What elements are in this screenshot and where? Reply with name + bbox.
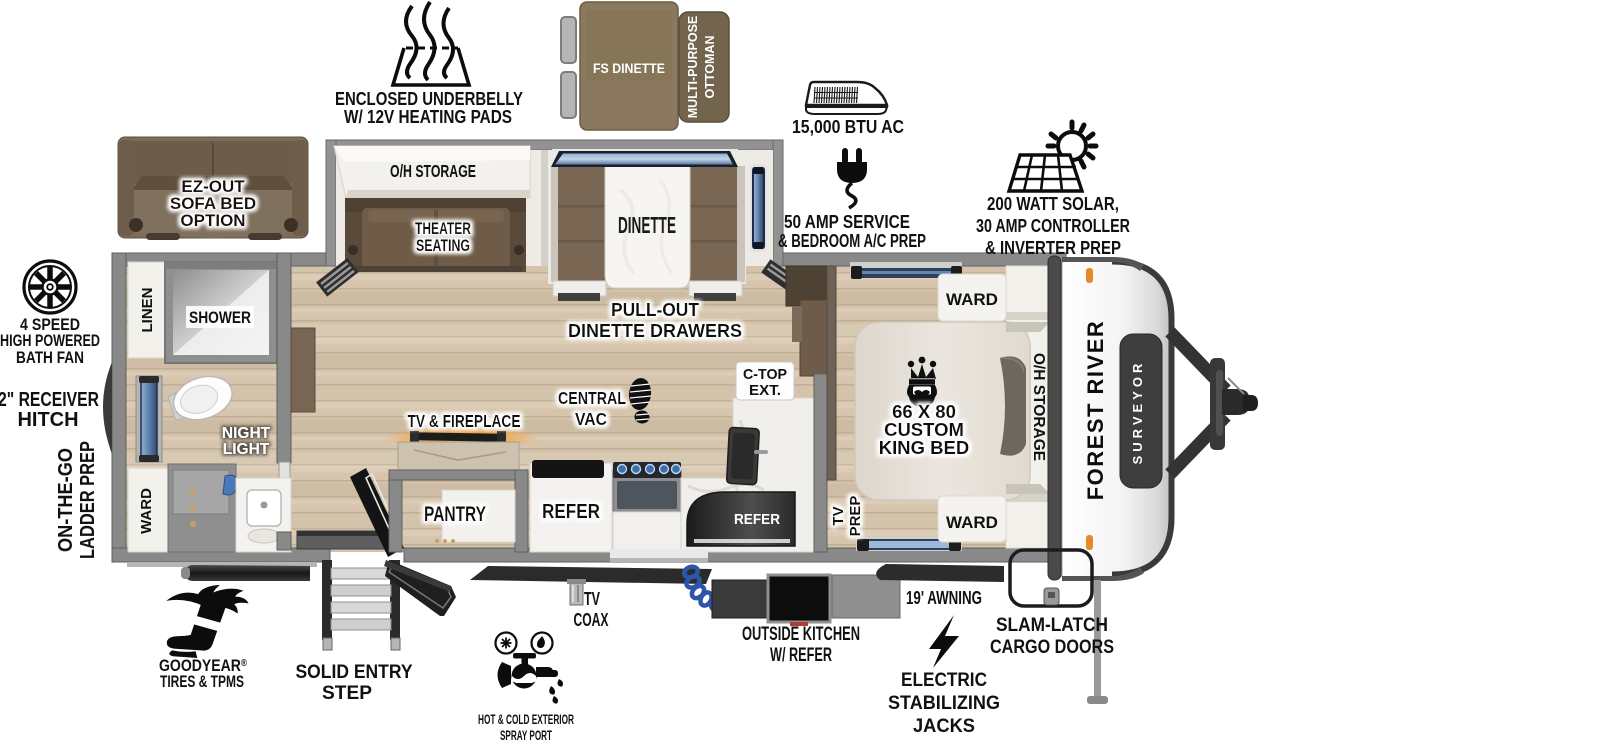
svg-text:KING BED: KING BED [879, 437, 969, 458]
svg-text:O/H STORAGE: O/H STORAGE [1030, 353, 1047, 461]
svg-text:WARD: WARD [946, 290, 998, 309]
svg-text:SURVEYOR: SURVEYOR [1130, 360, 1145, 465]
svg-text:W/ 12V HEATING PADS: W/ 12V HEATING PADS [344, 107, 512, 127]
svg-text:STEP: STEP [322, 683, 372, 704]
svg-text:FOREST RIVER: FOREST RIVER [1083, 320, 1108, 501]
svg-text:MULTI-PURPOSE: MULTI-PURPOSE [686, 16, 700, 119]
svg-text:CENTRAL: CENTRAL [558, 388, 626, 408]
svg-text:COAX: COAX [574, 610, 609, 630]
svg-text:FS DINETTE: FS DINETTE [593, 60, 665, 76]
svg-text:BATH FAN: BATH FAN [16, 348, 84, 367]
svg-text:& BEDROOM A/C PREP: & BEDROOM A/C PREP [778, 231, 926, 251]
svg-text:ELECTRIC: ELECTRIC [901, 670, 987, 691]
svg-text:NIGHT: NIGHT [222, 425, 271, 442]
svg-text:VAC: VAC [575, 409, 607, 429]
svg-text:OPTION: OPTION [180, 211, 245, 230]
svg-text:30 AMP CONTROLLER: 30 AMP CONTROLLER [976, 216, 1130, 236]
svg-text:OTTOMAN: OTTOMAN [703, 36, 717, 99]
svg-text:CARGO DOORS: CARGO DOORS [990, 637, 1114, 658]
svg-text:& INVERTER PREP: & INVERTER PREP [985, 238, 1121, 258]
svg-text:SEATING: SEATING [416, 236, 470, 255]
svg-text:15,000 BTU AC: 15,000 BTU AC [792, 117, 904, 137]
svg-text:REFER: REFER [542, 501, 600, 523]
svg-text:HOT & COLD EXTERIOR: HOT & COLD EXTERIOR [478, 712, 574, 727]
svg-text:OUTSIDE KITCHEN: OUTSIDE KITCHEN [742, 624, 860, 645]
svg-text:TV: TV [830, 506, 847, 525]
svg-text:ENCLOSED UNDERBELLY: ENCLOSED UNDERBELLY [335, 89, 523, 109]
svg-text:JACKS: JACKS [913, 716, 975, 737]
svg-text:WARD: WARD [946, 513, 998, 532]
svg-text:W/ REFER: W/ REFER [770, 645, 832, 666]
svg-text:LINEN: LINEN [139, 288, 156, 333]
svg-text:TIRES & TPMS: TIRES & TPMS [160, 672, 244, 691]
svg-text:50 AMP SERVICE: 50 AMP SERVICE [784, 212, 910, 232]
svg-text:TV: TV [584, 589, 600, 609]
svg-text:TV & FIREPLACE: TV & FIREPLACE [408, 411, 521, 431]
svg-text:C-TOP: C-TOP [743, 366, 787, 383]
svg-text:REFER: REFER [734, 511, 780, 528]
svg-text:19' AWNING: 19' AWNING [906, 588, 982, 608]
svg-text:SPRAY PORT: SPRAY PORT [500, 728, 552, 743]
svg-text:O/H STORAGE: O/H STORAGE [390, 161, 476, 181]
svg-text:200 WATT SOLAR,: 200 WATT SOLAR, [987, 194, 1119, 214]
svg-text:PREP: PREP [847, 496, 864, 537]
svg-text:ON-THE-GO: ON-THE-GO [55, 448, 77, 552]
svg-text:DINETTE: DINETTE [618, 212, 676, 238]
svg-text:WARD: WARD [138, 488, 155, 534]
svg-text:EXT.: EXT. [749, 382, 781, 399]
svg-text:LIGHT: LIGHT [223, 441, 270, 458]
svg-text:HITCH: HITCH [17, 409, 78, 431]
svg-text:STABILIZING: STABILIZING [888, 693, 1000, 714]
svg-text:SHOWER: SHOWER [189, 308, 251, 327]
svg-text:PANTRY: PANTRY [424, 503, 486, 526]
svg-text:SLAM-LATCH: SLAM-LATCH [996, 615, 1108, 636]
svg-text:SOLID ENTRY: SOLID ENTRY [296, 662, 413, 683]
svg-text:PULL-OUT: PULL-OUT [611, 300, 699, 320]
svg-text:LADDER PREP: LADDER PREP [77, 441, 99, 559]
svg-text:DINETTE DRAWERS: DINETTE DRAWERS [568, 321, 742, 341]
svg-text:2" RECEIVER: 2" RECEIVER [0, 389, 99, 411]
